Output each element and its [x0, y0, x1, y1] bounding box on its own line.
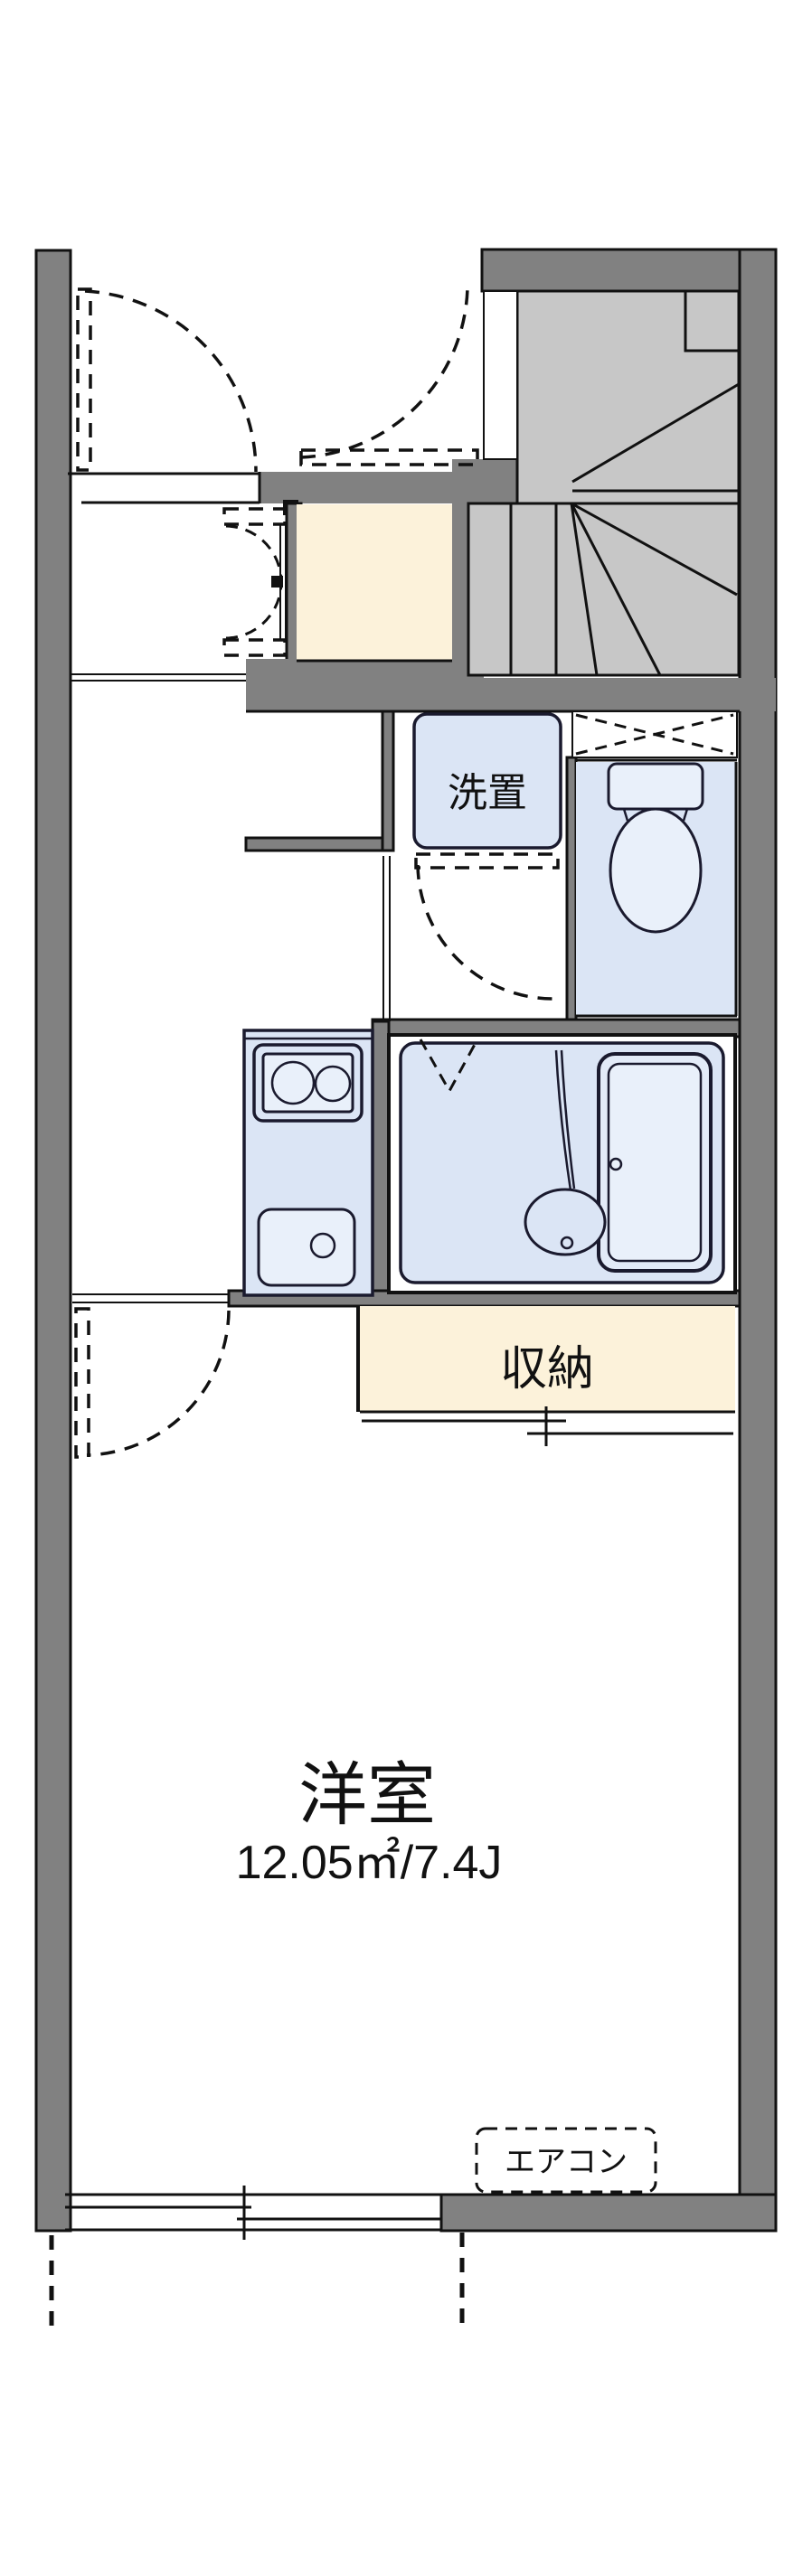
aircon-label: エアコン [505, 2145, 628, 2179]
kitchen [244, 1030, 373, 1295]
stair-lower-area [468, 503, 739, 675]
toilet-left-wall [567, 757, 576, 1020]
closet-left-wall [356, 1306, 360, 1412]
toilet-fixture [609, 764, 703, 932]
kitchen-right-wall [373, 1021, 389, 1306]
wall-under-genkan [246, 659, 484, 711]
genkan-entry [297, 504, 452, 661]
washer-alcove-bottom-wall [246, 838, 393, 851]
main-room-area-label: 12.05㎡/7.4J [236, 1836, 503, 1889]
genkan-floor [297, 504, 452, 661]
stair-top-wall [482, 249, 776, 291]
double-door-arc-top [226, 526, 281, 582]
right-outer-wall [740, 249, 776, 2231]
floor-plan-drawing: 洗置 [0, 0, 812, 2576]
entrance-door-swing-arc [301, 287, 467, 457]
stair-bottom-band-wall [452, 678, 776, 711]
toilet-bowl [610, 809, 701, 932]
storage-door-leaf [78, 289, 90, 470]
kitchen-sink [259, 1209, 354, 1285]
bottom-right-wall [441, 2195, 776, 2231]
stair-upper-area [517, 291, 739, 503]
toilet-room [572, 711, 737, 1016]
washer-storage-label: 洗置 [448, 771, 527, 815]
entrance-top-wall [260, 472, 484, 503]
main-room-door-leaf [76, 1309, 89, 1457]
storage-door-swing-arc [85, 291, 256, 472]
entrance-door-leaf [301, 450, 477, 465]
storage-room [68, 289, 286, 681]
bathtub-inner [609, 1064, 701, 1261]
bottom-window [65, 2186, 441, 2240]
boundary-dashes [52, 2233, 462, 2332]
entrance-door [301, 287, 477, 465]
stair-left-strip-wall [452, 503, 468, 681]
closet-label: 収納 [500, 1343, 594, 1396]
washer-storage: 洗置 [383, 714, 561, 1021]
washroom-door-leaf [416, 854, 558, 868]
double-door-leaf-bottom [224, 640, 285, 655]
floor-plan-page: 洗置 [0, 0, 812, 2576]
main-room-door [72, 1294, 229, 1457]
toilet-tank [609, 764, 703, 809]
washroom-finger-wall [382, 711, 393, 851]
washroom-door-swing-arc [418, 865, 552, 999]
main-room-label: 洋室 [298, 1757, 436, 1834]
stove-top [263, 1054, 353, 1112]
bath-stool [525, 1189, 605, 1255]
stair-landing-strip [484, 291, 517, 459]
closet: 収納 [360, 1306, 735, 1446]
aircon: エアコン [477, 2129, 656, 2192]
bathroom [389, 1035, 735, 1293]
main-room: 洋室 12.05㎡/7.4J [236, 1757, 503, 1889]
double-door-latch [271, 576, 283, 588]
double-door-arc-bottom [226, 582, 281, 638]
left-outer-wall [36, 250, 71, 2231]
double-door-leaf-top [224, 509, 285, 524]
main-room-door-swing-arc [87, 1311, 229, 1455]
storage-double-door [224, 509, 286, 655]
